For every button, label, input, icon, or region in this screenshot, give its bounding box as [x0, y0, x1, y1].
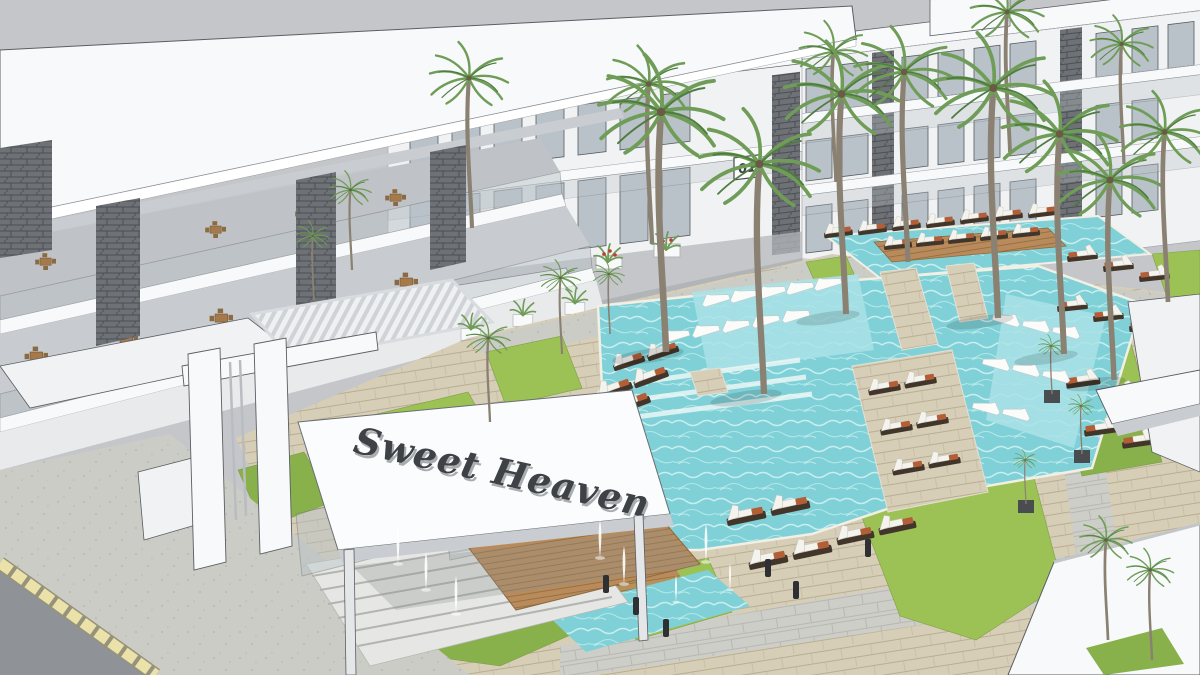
stone-cladding-pier: [96, 198, 140, 346]
portal-pillar: [188, 348, 226, 570]
resort-render-canvas: 01: [0, 0, 1200, 675]
canopy-post: [344, 549, 356, 675]
stone-cladding-pier: [430, 145, 466, 270]
stone-cladding-pier: [296, 172, 336, 308]
resort-render: 01: [0, 0, 1200, 675]
portal-pillar: [254, 338, 292, 554]
stone-cladding-pier: [0, 140, 52, 258]
